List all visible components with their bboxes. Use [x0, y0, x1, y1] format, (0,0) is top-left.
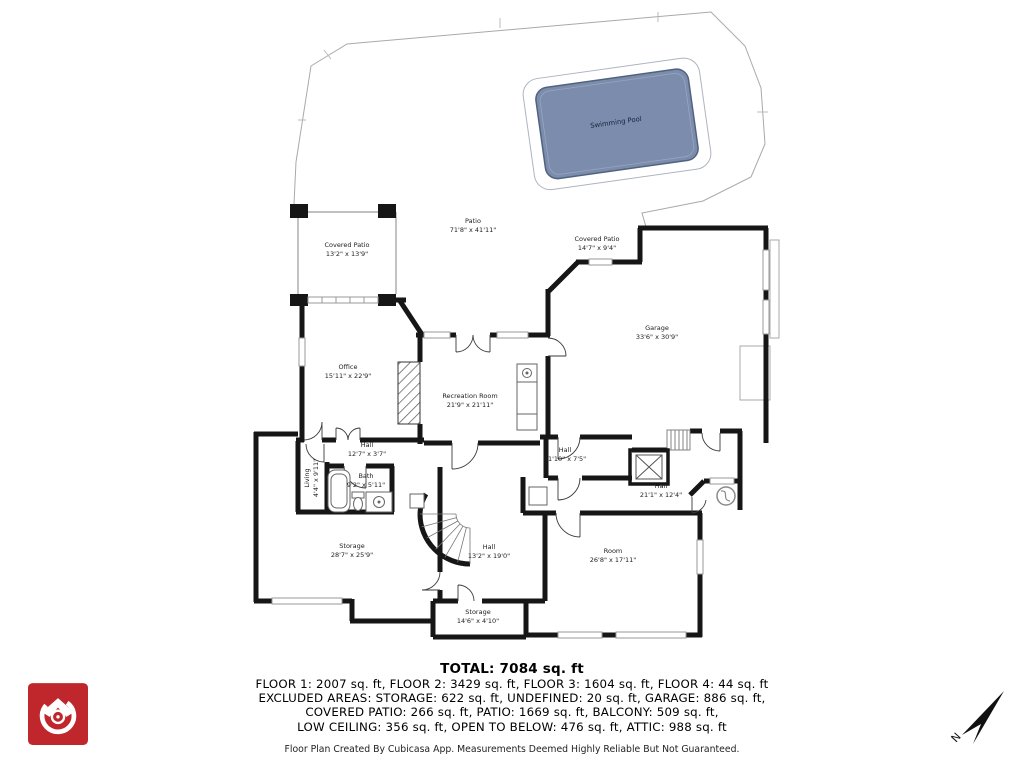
- toilet: [352, 492, 364, 511]
- walls: [254, 228, 768, 637]
- north-label: N: [949, 730, 964, 745]
- room-label-office: Office15'11" x 22'9": [325, 363, 371, 381]
- floor-plan-page: Swimming Pool Patio71'8" x 41'11" Covere…: [0, 0, 1024, 768]
- pillar: [410, 494, 424, 508]
- floor-plan-drawing: [0, 0, 1024, 768]
- room-label-hall-b: Hall11'10" x 7'5": [544, 446, 586, 464]
- elevator: [630, 450, 668, 484]
- spiral-symbol: [717, 487, 735, 505]
- balcony-outline: [740, 240, 779, 400]
- room-label-living: Living4'4" x 9'11": [303, 459, 321, 497]
- summary-line-4: LOW CEILING: 356 sq. ft, OPEN TO BELOW: …: [0, 720, 1024, 734]
- stairs-straight: [667, 430, 690, 450]
- room-label-covered-patio-left: Covered Patio13'2" x 13'9": [324, 241, 369, 259]
- total-area: TOTAL: 7084 sq. ft: [0, 661, 1024, 677]
- summary-line-2: EXCLUDED AREAS: STORAGE: 622 sq. ft, UND…: [0, 691, 1024, 705]
- area-summary: TOTAL: 7084 sq. ft FLOOR 1: 2007 sq. ft,…: [0, 661, 1024, 755]
- room-label-bath: Bath9'2" x 5'11": [347, 472, 385, 490]
- room-label-hall-c: Hall21'1" x 12'4": [640, 482, 682, 500]
- summary-line-3: COVERED PATIO: 266 sq. ft, PATIO: 1669 s…: [0, 705, 1024, 719]
- wet-bar-counter: [517, 364, 537, 430]
- room-label-storage-main: Storage28'7" x 25'9": [331, 542, 373, 560]
- summary-line-1: FLOOR 1: 2007 sq. ft, FLOOR 2: 3429 sq. …: [0, 677, 1024, 691]
- room-label-hall-a: Hall12'7" x 3'7": [348, 441, 386, 459]
- room-label-patio: Patio71'8" x 41'11": [450, 217, 496, 235]
- cubicasa-logo-icon: [28, 683, 88, 745]
- room-label-room: Room26'8" x 17'11": [590, 547, 636, 565]
- room-label-covered-patio-right: Covered Patio14'7" x 9'4": [574, 235, 619, 253]
- north-arrow-icon: N: [942, 683, 1014, 751]
- pillar: [529, 487, 547, 505]
- room-label-recreation-room: Recreation Room21'9" x 21'11": [442, 392, 497, 410]
- stairs-hatched: [398, 362, 420, 424]
- room-label-garage: Garage33'6" x 30'9": [636, 324, 678, 342]
- disclaimer-text: Floor Plan Created By Cubicasa App. Meas…: [0, 744, 1024, 755]
- bathroom-sink: [366, 492, 392, 512]
- room-label-hall-d: Hall13'2" x 19'0": [468, 543, 510, 561]
- room-label-storage-small: Storage14'6" x 4'10": [457, 608, 499, 626]
